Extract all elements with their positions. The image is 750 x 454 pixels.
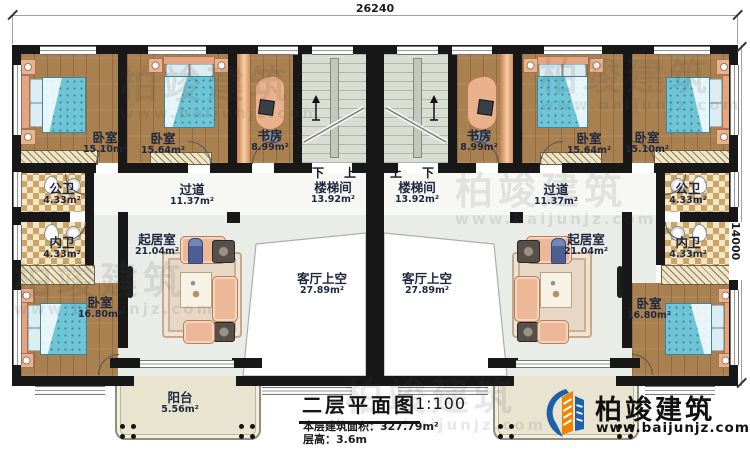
column xyxy=(227,212,240,223)
logo-icon xyxy=(542,383,590,441)
plan-floor-height-text: 层高：3.6m xyxy=(303,431,367,447)
interior-wall xyxy=(448,54,457,169)
toilet-icon xyxy=(44,176,59,194)
window xyxy=(40,46,96,55)
toilet-icon xyxy=(692,176,707,194)
extension-line-right xyxy=(737,16,738,44)
side-table-icon xyxy=(517,240,540,263)
plan-scale: 1:100 xyxy=(415,394,466,413)
interior-wall xyxy=(623,54,632,169)
dimension-line-right xyxy=(741,45,742,386)
bed-icon xyxy=(42,77,86,133)
floor-plan-canvas: 26240 14000 xyxy=(0,0,750,454)
interior-wall xyxy=(562,163,632,173)
interior-wall xyxy=(293,54,302,169)
window xyxy=(654,46,710,55)
balcony-post xyxy=(120,434,125,439)
bed-icon xyxy=(40,303,87,355)
balcony-post xyxy=(509,434,514,439)
logo-website: www.baijunjz.com xyxy=(596,420,750,436)
window xyxy=(148,46,206,55)
window xyxy=(13,65,22,135)
nightstand-icon xyxy=(523,58,538,73)
exterior-wall xyxy=(236,376,366,386)
nightstand-icon xyxy=(214,58,229,73)
nightstand-icon xyxy=(148,58,163,73)
balcony-post xyxy=(120,424,125,429)
computer-icon xyxy=(477,99,494,116)
pillow-icon xyxy=(708,103,722,127)
interior-wall xyxy=(513,54,522,169)
coffee-table-icon xyxy=(180,272,212,308)
balcony-post xyxy=(250,434,255,439)
window xyxy=(13,290,22,365)
exterior-wall xyxy=(616,376,738,386)
window xyxy=(452,46,492,55)
exterior-wall xyxy=(12,376,134,386)
dimension-line-top xyxy=(12,15,738,16)
interior-wall xyxy=(12,163,96,173)
balcony-post xyxy=(239,434,244,439)
nightstand-icon xyxy=(589,58,604,73)
window xyxy=(258,46,298,55)
interior-wall xyxy=(118,54,127,169)
person-icon xyxy=(188,238,203,264)
balcony-post xyxy=(250,424,255,429)
balcony-wall xyxy=(232,358,262,368)
balcony-wall xyxy=(488,358,518,368)
balcony-post xyxy=(131,424,136,429)
interior-wall xyxy=(680,212,738,222)
window xyxy=(730,65,739,135)
party-wall xyxy=(366,54,384,386)
bed-icon xyxy=(164,76,215,128)
interior-wall xyxy=(274,163,312,173)
interior-wall xyxy=(228,54,237,169)
sliding-door xyxy=(140,360,234,368)
dimension-height-value: 14000 xyxy=(729,222,742,280)
tv-icon xyxy=(617,266,623,298)
exterior-wall xyxy=(12,45,738,54)
interior-wall xyxy=(438,163,476,173)
exterior-wall xyxy=(384,376,514,386)
pillow-icon xyxy=(711,305,724,328)
dimension-width-value: 26240 xyxy=(337,2,413,15)
interior-wall xyxy=(210,163,252,173)
sofa-icon xyxy=(514,276,540,322)
window xyxy=(730,172,739,207)
window xyxy=(35,386,105,395)
balcony-post xyxy=(509,424,514,429)
balcony-post xyxy=(498,434,503,439)
window xyxy=(13,172,22,207)
interior-wall xyxy=(118,163,188,173)
armchair-icon xyxy=(183,320,215,344)
interior-wall xyxy=(498,163,540,173)
stair-up-label: 上 xyxy=(390,164,402,181)
stair-down-label: 下 xyxy=(312,164,324,181)
interior-wall xyxy=(85,163,94,265)
window xyxy=(544,46,602,55)
balcony-post xyxy=(239,424,244,429)
pillow-icon xyxy=(711,328,724,351)
side-table-icon xyxy=(517,322,539,342)
bed-icon xyxy=(665,303,712,355)
window xyxy=(312,46,353,55)
armchair-icon xyxy=(537,320,569,344)
window xyxy=(13,225,22,260)
coffee-table-icon xyxy=(540,272,572,308)
bed-icon xyxy=(666,77,710,133)
interior-wall xyxy=(622,212,632,348)
computer-icon xyxy=(258,99,275,116)
stair-down-label: 下 xyxy=(422,164,434,181)
balcony-post xyxy=(498,424,503,429)
stair-arrow-right xyxy=(384,54,448,163)
window xyxy=(397,46,438,55)
column xyxy=(510,212,523,223)
side-table-icon xyxy=(212,240,235,263)
interior-wall xyxy=(12,212,70,222)
side-table-icon xyxy=(213,322,235,342)
toilet-icon xyxy=(692,224,707,242)
nightstand-icon xyxy=(20,129,36,145)
toilet-icon xyxy=(44,224,59,242)
nightstand-icon xyxy=(20,59,36,75)
balcony-post xyxy=(131,434,136,439)
extension-line-left xyxy=(12,16,13,44)
pillow-icon xyxy=(708,79,722,103)
tv-icon xyxy=(127,266,133,298)
sofa-icon xyxy=(212,276,238,322)
bed-icon xyxy=(537,76,588,128)
interior-wall xyxy=(654,163,738,173)
interior-wall xyxy=(656,163,665,265)
person-icon xyxy=(551,238,566,264)
window xyxy=(730,290,739,365)
stair-up-label: 上 xyxy=(344,164,356,181)
sliding-door xyxy=(516,360,610,368)
stair-arrow-left xyxy=(302,54,366,163)
